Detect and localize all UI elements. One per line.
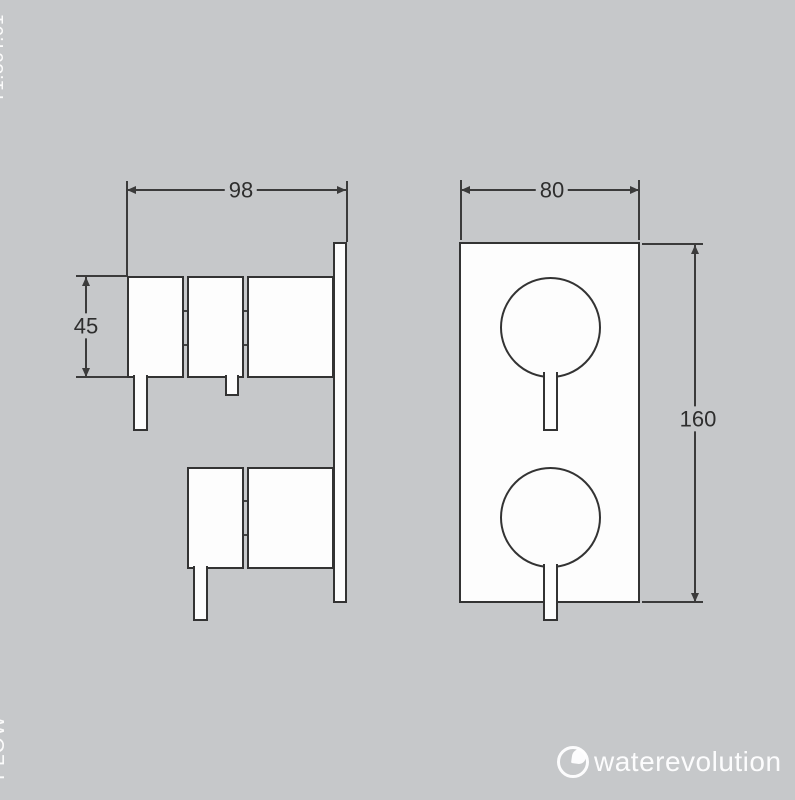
drawing-sheet: T1.36T.01 FLOW 98 bbox=[0, 0, 795, 800]
arrowhead-right-icon bbox=[337, 186, 346, 194]
dimension-value: 98 bbox=[225, 177, 257, 202]
lower-lever-profile bbox=[193, 566, 208, 621]
logo-text: waterevolution bbox=[594, 746, 782, 778]
lower-body-block bbox=[247, 467, 334, 569]
arrowhead-left-icon bbox=[461, 186, 470, 194]
upper-lever-profile bbox=[133, 375, 148, 431]
lower-handle-block bbox=[187, 467, 244, 569]
arrowhead-right-icon bbox=[630, 186, 639, 194]
arrowhead-left-icon bbox=[127, 186, 136, 194]
seam-tick bbox=[244, 310, 247, 312]
top-knob-lever bbox=[543, 372, 558, 431]
extension-line bbox=[126, 181, 128, 276]
waterevolution-logo: waterevolution bbox=[557, 746, 782, 778]
arrowhead-down-icon bbox=[691, 593, 699, 602]
seam-tick bbox=[244, 534, 247, 536]
dimension-value: 80 bbox=[536, 177, 568, 202]
bottom-knob-lever bbox=[543, 564, 558, 621]
upper-body-block bbox=[247, 276, 334, 378]
product-code-label: T1.36T.01 bbox=[0, 14, 9, 103]
upper-handle-block bbox=[127, 276, 184, 378]
wall-plate-profile bbox=[333, 242, 347, 603]
seam-tick bbox=[184, 310, 187, 312]
extension-line bbox=[346, 181, 348, 242]
water-drop-circle-icon bbox=[557, 746, 589, 778]
dimension-value: 160 bbox=[676, 406, 721, 431]
water-drop-icon bbox=[571, 748, 587, 765]
dimension-value: 45 bbox=[70, 313, 102, 338]
seam-tick bbox=[184, 344, 187, 346]
upper-stub-profile bbox=[225, 375, 239, 396]
flow-category-label: FLOW bbox=[0, 715, 9, 780]
top-knob-circle bbox=[500, 277, 601, 378]
bottom-knob-circle bbox=[500, 467, 601, 568]
arrowhead-up-icon bbox=[691, 245, 699, 254]
upper-middle-block bbox=[187, 276, 244, 378]
arrowhead-up-icon bbox=[82, 277, 90, 286]
seam-tick bbox=[244, 344, 247, 346]
seam-tick bbox=[244, 500, 247, 502]
arrowhead-down-icon bbox=[82, 368, 90, 377]
